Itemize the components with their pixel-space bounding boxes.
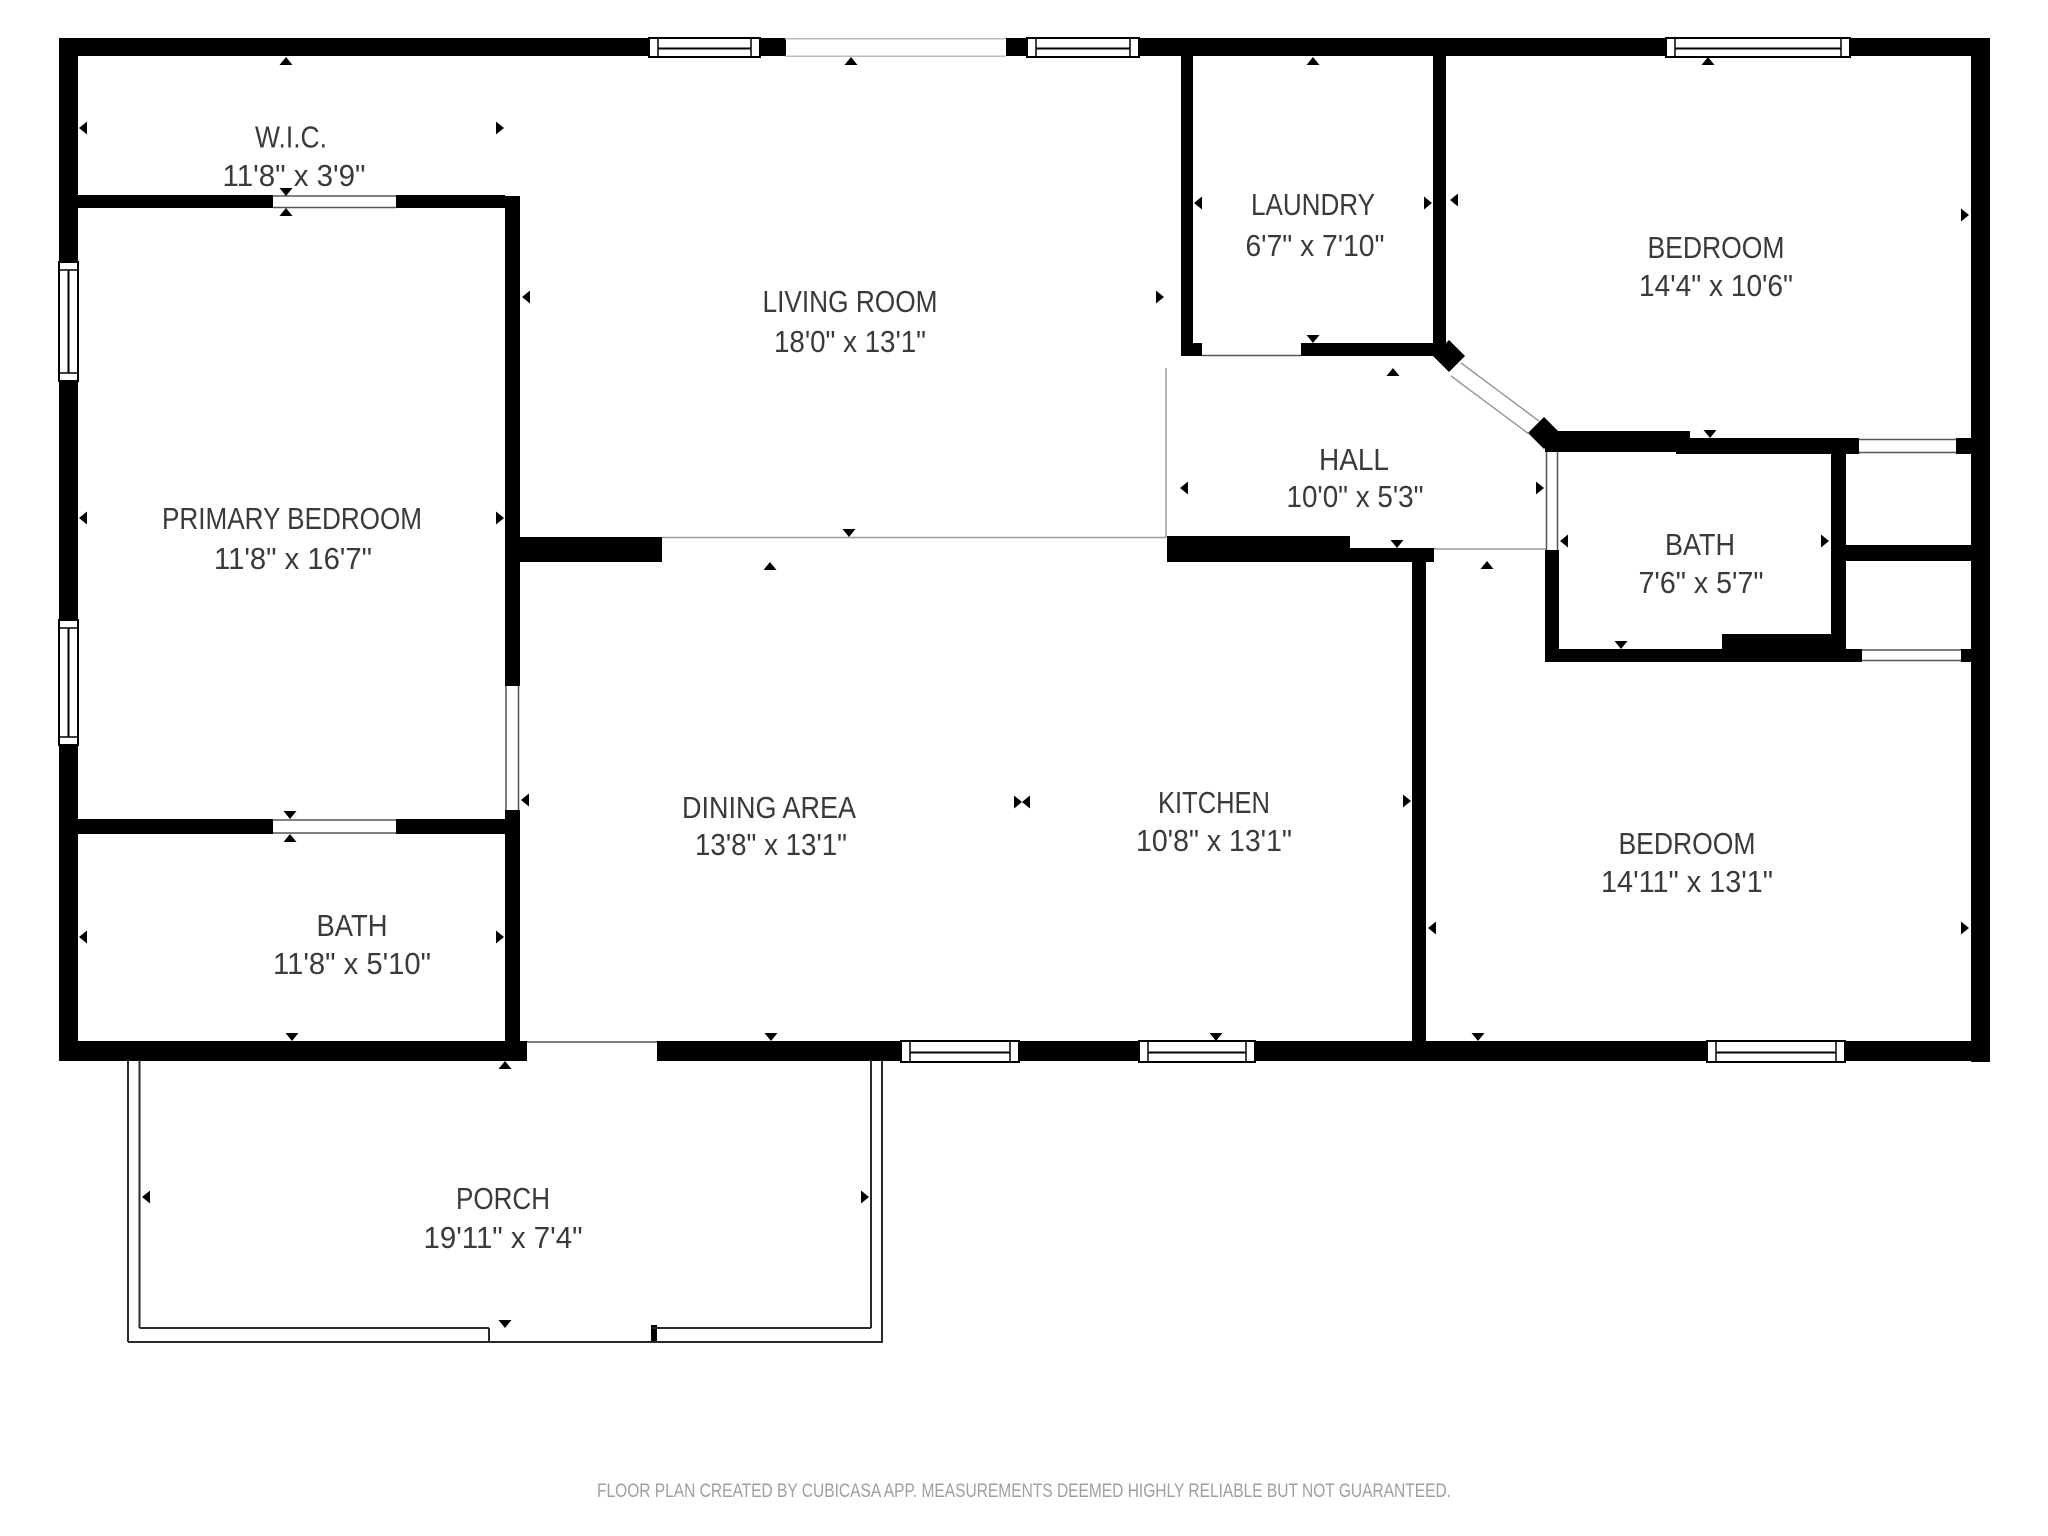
svg-text:10'0" x 5'3": 10'0" x 5'3" [1287, 479, 1424, 514]
svg-text:BEDROOM: BEDROOM [1619, 826, 1756, 861]
svg-text:6'7" x 7'10": 6'7" x 7'10" [1246, 228, 1385, 263]
svg-text:19'11" x 7'4": 19'11" x 7'4" [424, 1220, 583, 1255]
svg-text:11'8" x 16'7": 11'8" x 16'7" [214, 541, 372, 576]
svg-text:LAUNDRY: LAUNDRY [1251, 187, 1375, 222]
svg-text:DINING AREA: DINING AREA [682, 790, 856, 825]
svg-text:14'11" x 13'1": 14'11" x 13'1" [1601, 864, 1773, 899]
svg-text:PORCH: PORCH [456, 1181, 550, 1216]
svg-text:BATH: BATH [1665, 527, 1735, 562]
svg-text:KITCHEN: KITCHEN [1158, 785, 1270, 820]
svg-text:LIVING ROOM: LIVING ROOM [763, 284, 938, 319]
svg-text:14'4" x 10'6": 14'4" x 10'6" [1639, 268, 1793, 303]
svg-text:11'8" x 3'9": 11'8" x 3'9" [223, 158, 366, 193]
svg-text:W.I.C.: W.I.C. [255, 120, 327, 155]
svg-text:PRIMARY BEDROOM: PRIMARY BEDROOM [162, 501, 422, 536]
svg-text:13'8" x 13'1": 13'8" x 13'1" [695, 827, 847, 862]
svg-text:7'6" x 5'7": 7'6" x 5'7" [1639, 565, 1764, 600]
svg-text:FLOOR PLAN CREATED BY CUBICASA: FLOOR PLAN CREATED BY CUBICASA APP. MEAS… [597, 1481, 1451, 1502]
svg-text:BATH: BATH [317, 908, 388, 943]
svg-text:10'8" x 13'1": 10'8" x 13'1" [1136, 823, 1292, 858]
svg-text:HALL: HALL [1319, 442, 1389, 477]
svg-text:11'8" x 5'10": 11'8" x 5'10" [273, 946, 431, 981]
svg-text:18'0" x 13'1": 18'0" x 13'1" [774, 324, 926, 359]
svg-text:BEDROOM: BEDROOM [1648, 230, 1785, 265]
